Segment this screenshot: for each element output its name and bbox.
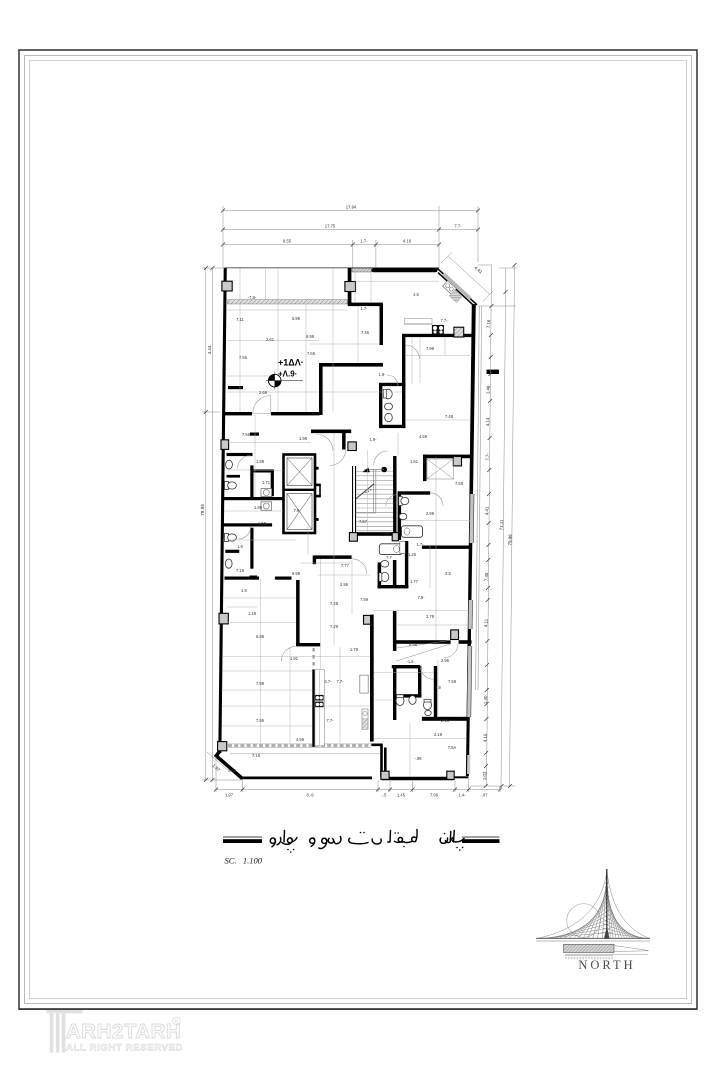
svg-text:1.7-: 1.7- — [416, 542, 424, 547]
svg-text:7.55: 7.55 — [239, 355, 248, 360]
svg-text:7.99: 7.99 — [426, 346, 435, 351]
svg-text:1.45: 1.45 — [397, 793, 406, 798]
svg-text:2.69: 2.69 — [259, 390, 268, 395]
svg-text:2.16: 2.16 — [441, 718, 450, 723]
svg-text:9.55: 9.55 — [283, 239, 292, 244]
svg-text:7.46: 7.46 — [361, 330, 370, 335]
svg-text:9.99: 9.99 — [409, 642, 418, 647]
svg-text:1.77: 1.77 — [381, 532, 390, 537]
svg-text:-.5: -.5 — [382, 793, 388, 798]
svg-text:1.9: 1.9 — [435, 685, 441, 690]
svg-text:1.79: 1.79 — [350, 647, 359, 652]
svg-text:1.9-: 1.9- — [378, 372, 386, 377]
svg-text:1.7-: 1.7- — [360, 239, 368, 244]
svg-text:1.99: 1.99 — [228, 768, 237, 773]
svg-text:7.59: 7.59 — [448, 679, 457, 684]
svg-text:1.55: 1.55 — [258, 521, 267, 526]
svg-text:5.99: 5.99 — [292, 316, 301, 321]
svg-text:7.99: 7.99 — [360, 597, 369, 602]
svg-text:1.7-: 1.7- — [360, 306, 368, 311]
svg-text:7.7-: 7.7- — [485, 452, 490, 460]
svg-text:7.28: 7.28 — [330, 601, 339, 606]
svg-text:SC. 1.100: SC. 1.100 — [225, 856, 263, 866]
svg-text:7.7-: 7.7- — [326, 718, 334, 723]
svg-text:71.11: 71.11 — [499, 519, 505, 530]
svg-text:1.99: 1.99 — [256, 459, 265, 464]
svg-text:79.99: 79.99 — [507, 534, 513, 546]
svg-text:1.51: 1.51 — [410, 459, 419, 464]
svg-text:7.19: 7.19 — [236, 568, 245, 573]
svg-text:-.99: -.99 — [414, 756, 422, 761]
svg-text:4.41: 4.41 — [484, 506, 489, 515]
svg-text:7.65: 7.65 — [307, 351, 316, 356]
svg-text:2.95: 2.95 — [340, 582, 349, 587]
svg-text:7.95: 7.95 — [256, 718, 265, 723]
svg-text:7.9-: 7.9- — [417, 595, 425, 600]
svg-text:1.97: 1.97 — [211, 763, 221, 773]
svg-text:-7.8-: -7.8- — [248, 295, 257, 300]
svg-text:7.96: 7.96 — [430, 793, 439, 798]
svg-text:1.89: 1.89 — [254, 505, 263, 510]
svg-text:1.71: 1.71 — [262, 480, 271, 485]
svg-text:4.16: 4.16 — [403, 239, 412, 244]
svg-text:7.7: 7.7 — [386, 555, 392, 560]
svg-text:7.48: 7.48 — [445, 414, 454, 419]
svg-text:1.97: 1.97 — [225, 793, 234, 798]
svg-text:5.99: 5.99 — [256, 634, 265, 639]
svg-text:R: R — [175, 1020, 179, 1026]
svg-text:17.94: 17.94 — [346, 205, 357, 210]
svg-text:1.9-: 1.9- — [369, 437, 377, 442]
svg-text:7.45: 7.45 — [484, 572, 489, 581]
svg-text:1.03: 1.03 — [482, 771, 487, 780]
svg-text:1.19: 1.19 — [248, 611, 257, 616]
svg-text:1.40: 1.40 — [483, 695, 488, 704]
svg-text:1.9: 1.9 — [237, 544, 243, 549]
svg-text:1.77: 1.77 — [410, 579, 419, 584]
svg-text:-.67: -.67 — [480, 793, 488, 798]
svg-text:+Λ.9·: +Λ.9· — [278, 370, 297, 379]
svg-text:7.11: 7.11 — [236, 317, 244, 322]
svg-text:4.15: 4.15 — [482, 733, 487, 742]
svg-text:1.48: 1.48 — [485, 385, 490, 394]
svg-text:2.79: 2.79 — [426, 614, 435, 619]
svg-text:7.58: 7.58 — [242, 432, 251, 437]
svg-text:1.91: 1.91 — [290, 656, 299, 661]
svg-text:4.7-: 4.7- — [324, 679, 332, 684]
svg-text:4.14: 4.14 — [485, 417, 490, 426]
svg-text:4.44: 4.44 — [207, 345, 212, 354]
svg-text:NORTH: NORTH — [578, 958, 635, 972]
svg-text:79.94: 79.94 — [200, 504, 205, 516]
svg-text:17.75: 17.75 — [325, 224, 336, 229]
svg-text:4.69: 4.69 — [419, 434, 428, 439]
svg-text:2.19: 2.19 — [434, 732, 443, 737]
svg-text:2.95: 2.95 — [441, 658, 450, 663]
svg-text:1.26: 1.26 — [408, 552, 417, 557]
svg-text:4.41: 4.41 — [473, 265, 483, 275]
svg-text:7.16: 7.16 — [486, 319, 491, 328]
svg-text:7.77: 7.77 — [341, 563, 350, 568]
svg-text:8.-9: 8.-9 — [306, 793, 314, 798]
svg-text:7.29: 7.29 — [330, 624, 339, 629]
svg-text:2.99: 2.99 — [426, 511, 435, 516]
svg-text:2.61: 2.61 — [266, 337, 275, 342]
svg-text:+1ΔΛ·: +1ΔΛ· — [278, 358, 304, 368]
svg-text:4.6: 4.6 — [413, 292, 419, 297]
svg-text:7.16: 7.16 — [252, 753, 261, 758]
svg-text:ARH2TARH: ARH2TARH — [66, 1020, 181, 1043]
svg-text:7.8-: 7.8- — [293, 508, 301, 513]
svg-text:7.7-: 7.7- — [440, 318, 448, 323]
svg-text:1.4-: 1.4- — [458, 793, 466, 798]
svg-text:7.7-: 7.7- — [336, 679, 344, 684]
svg-text:1.9: 1.9 — [241, 588, 247, 593]
svg-text:2.5: 2.5 — [445, 571, 451, 576]
svg-text:7.99: 7.99 — [256, 681, 265, 686]
svg-text:ALL RIGHT RESERVED: ALL RIGHT RESERVED — [66, 1043, 183, 1054]
svg-text:4.11: 4.11 — [483, 618, 488, 627]
svg-text:9.99: 9.99 — [292, 571, 301, 576]
svg-text:7.57: 7.57 — [359, 519, 368, 524]
svg-text:-1.5: -1.5 — [406, 659, 414, 664]
svg-text:4.99: 4.99 — [296, 737, 305, 742]
svg-text:9.99: 9.99 — [306, 334, 315, 339]
svg-text:7.5A: 7.5A — [448, 745, 457, 750]
svg-text:7.59: 7.59 — [455, 481, 464, 486]
svg-text:1.98: 1.98 — [299, 436, 308, 441]
svg-text:7.7-: 7.7- — [454, 224, 462, 229]
